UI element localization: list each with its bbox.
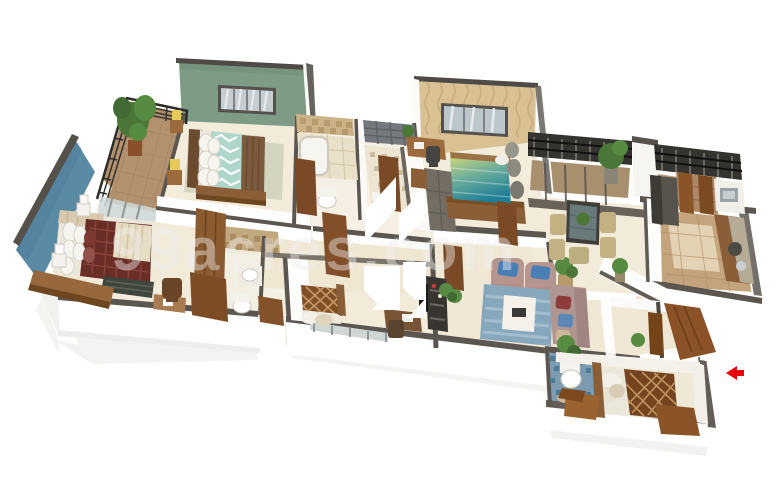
svg-text:99acres.com: 99acres.com — [111, 216, 519, 283]
